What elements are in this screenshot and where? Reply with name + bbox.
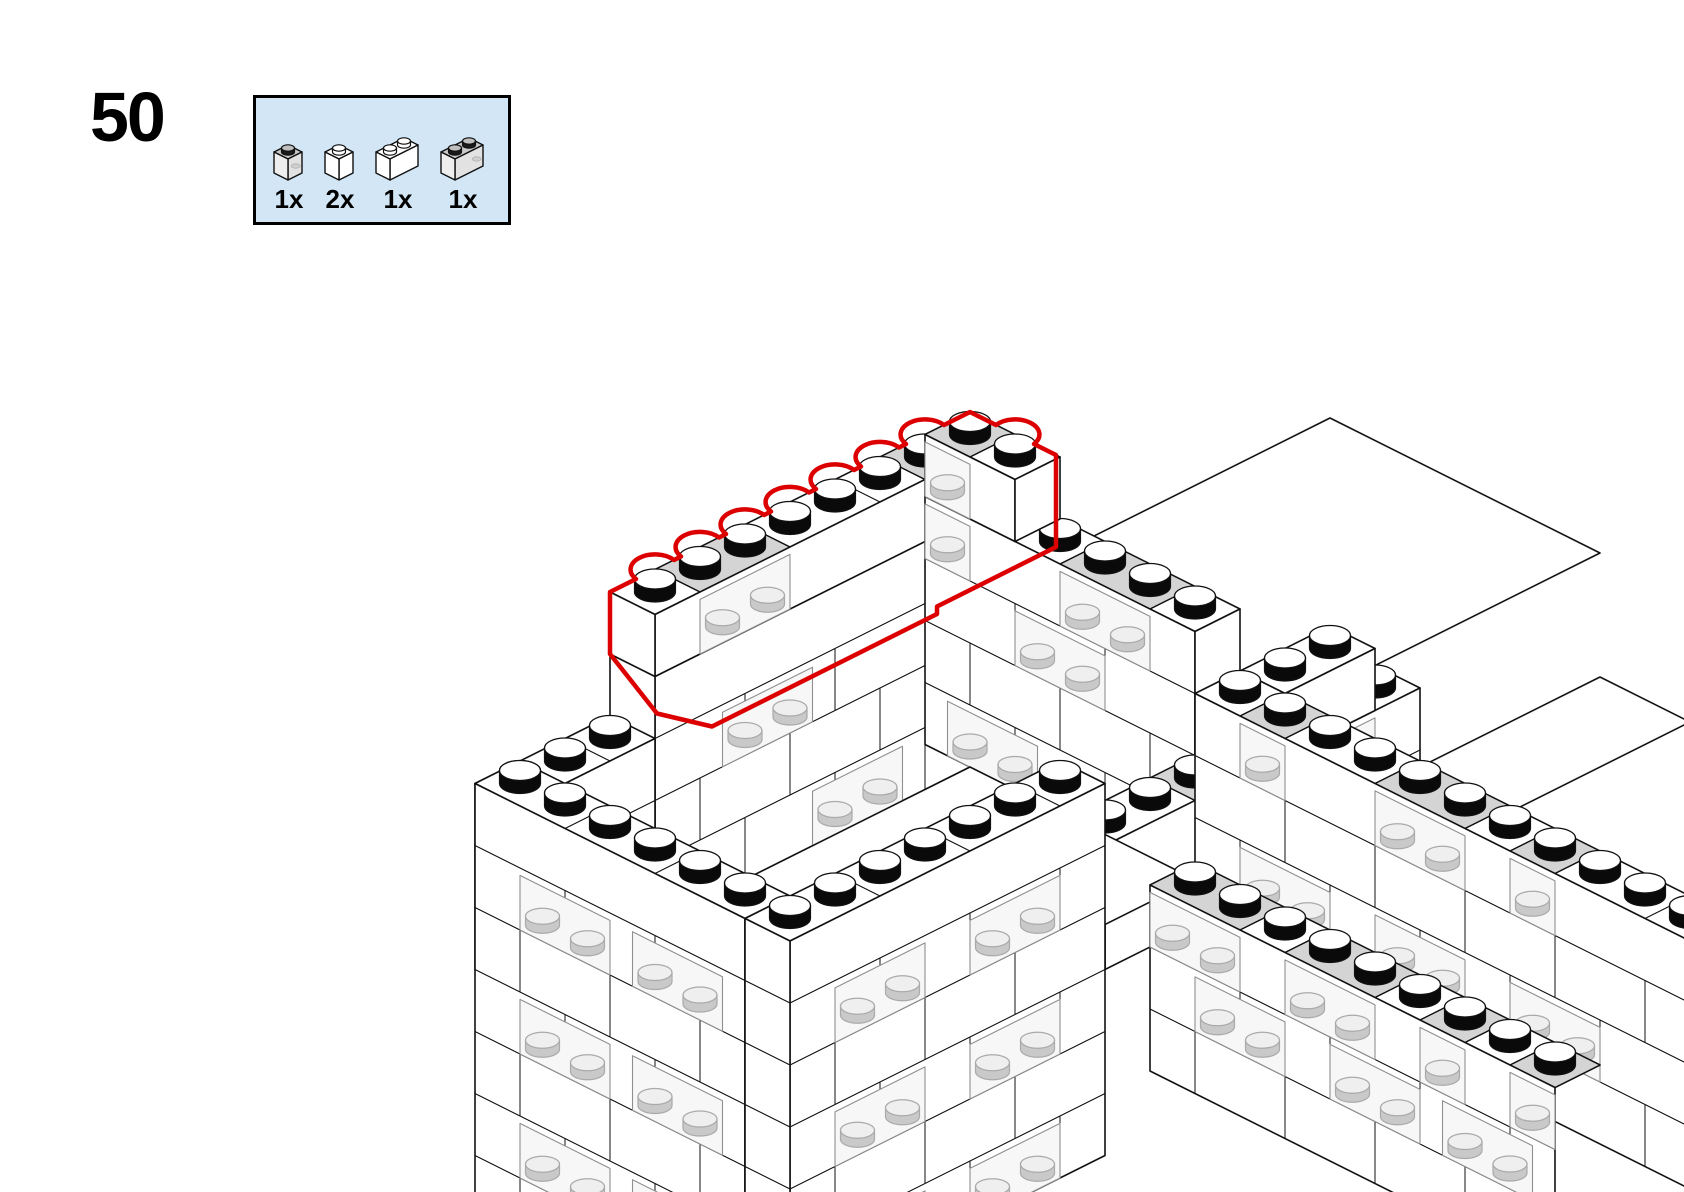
instruction-page: 50 1x2x1x1x bbox=[0, 0, 1684, 1192]
model-illustration bbox=[0, 0, 1684, 1192]
